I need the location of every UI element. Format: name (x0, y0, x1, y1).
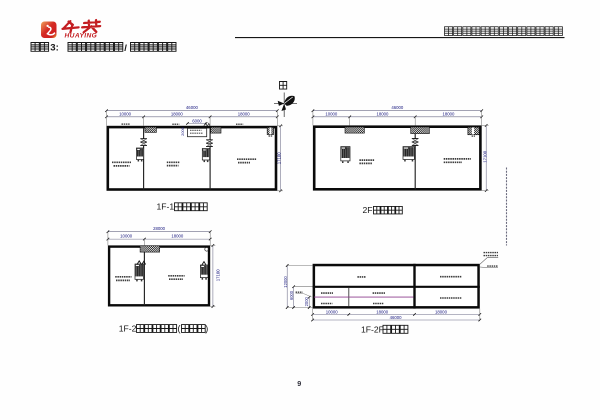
svg-text:17100: 17100 (482, 150, 487, 163)
svg-text:6000: 6000 (192, 119, 202, 124)
svg-text:18000: 18000 (171, 111, 184, 116)
svg-text:10000: 10000 (120, 233, 133, 238)
svg-text:46000: 46000 (390, 315, 403, 320)
svg-text:28000: 28000 (153, 226, 166, 231)
svg-text:10000: 10000 (326, 309, 339, 314)
svg-text:1F-2F: 1F-2F (361, 324, 384, 334)
svg-text:1F-2: 1F-2 (119, 323, 137, 333)
svg-text:18000: 18000 (171, 233, 184, 238)
svg-text:2F: 2F (363, 205, 373, 215)
svg-text:6000: 6000 (289, 290, 294, 300)
svg-text:18000: 18000 (376, 111, 389, 116)
svg-text:/: / (124, 43, 127, 54)
svg-text:17100: 17100 (215, 269, 220, 282)
svg-text:12000: 12000 (283, 276, 288, 288)
svg-text:10000: 10000 (325, 111, 338, 116)
svg-text:46000: 46000 (186, 105, 199, 110)
svg-text:18000: 18000 (238, 111, 251, 116)
svg-text:2000: 2000 (304, 297, 309, 307)
svg-text:18000: 18000 (376, 309, 389, 314)
svg-text:10000: 10000 (119, 111, 132, 116)
svg-text:3:: 3: (50, 43, 59, 54)
svg-text:2000: 2000 (180, 126, 185, 135)
svg-text:46000: 46000 (391, 105, 404, 110)
svg-text:18000: 18000 (435, 309, 448, 314)
svg-text:18000: 18000 (442, 111, 455, 116)
svg-text:): ) (205, 324, 208, 334)
svg-text:1F-1: 1F-1 (157, 201, 175, 211)
svg-text:9: 9 (297, 379, 301, 388)
svg-text:HUAYING: HUAYING (65, 32, 98, 39)
svg-text:17100: 17100 (277, 152, 282, 165)
svg-text:(: ( (178, 324, 181, 334)
